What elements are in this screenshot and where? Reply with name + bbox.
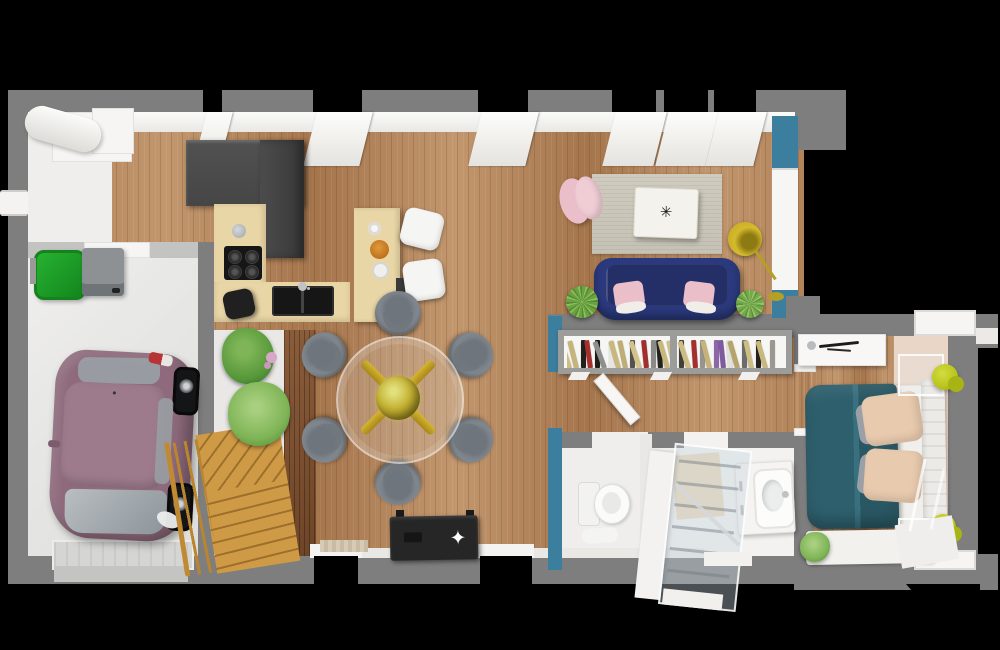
left-exterior-wall <box>8 96 28 566</box>
bay-blue-wall-top <box>772 116 798 170</box>
tv-cabinet: ✦ <box>390 515 479 561</box>
chair-seat <box>383 465 413 484</box>
table-lamp-small <box>948 376 964 392</box>
wc-top-wall <box>562 432 592 448</box>
yucca-plant <box>566 286 598 318</box>
chair-seat <box>383 312 413 331</box>
faucet <box>298 282 307 291</box>
coffee-cup <box>368 222 381 235</box>
star-ornament-icon: ✦ <box>446 525 470 549</box>
wc-mat <box>582 527 619 544</box>
coffee-table: ✳ <box>633 187 699 239</box>
recycling-bin <box>34 250 86 300</box>
bathroom-window-sill <box>704 552 752 566</box>
bed <box>805 379 950 531</box>
burner <box>228 250 242 264</box>
kettle <box>232 224 246 238</box>
top-right-corner-wall <box>793 90 846 150</box>
floor-plan-render: ✦ ✳ <box>0 0 1000 650</box>
corner-cutout <box>906 584 980 620</box>
top-wall-segment <box>222 90 313 114</box>
plate <box>372 262 389 279</box>
top-wall-segment <box>362 90 478 114</box>
bedroom-window-top <box>914 310 976 336</box>
stairs-lower-treads <box>204 480 300 574</box>
wall-sliver <box>976 328 998 344</box>
kitchen-tall-cabinet <box>260 140 304 258</box>
car-antenna <box>113 391 116 394</box>
dresser-decor <box>819 341 859 348</box>
side-plant <box>736 290 764 318</box>
glass-shower-enclosure <box>632 440 771 618</box>
doormat <box>320 540 368 552</box>
book-spine <box>691 340 698 368</box>
burner <box>245 265 259 279</box>
chandelier-globe <box>376 376 420 420</box>
dresser <box>798 334 886 366</box>
fruit-bowl <box>370 240 389 259</box>
bookshelf <box>558 330 792 374</box>
cabinet-decor <box>404 532 422 542</box>
car-windshield <box>64 489 167 535</box>
dining-chair <box>375 461 421 505</box>
car-mirror <box>48 440 60 448</box>
bath-top-wall <box>728 432 796 448</box>
sofa <box>594 258 740 320</box>
book-spine <box>651 340 656 368</box>
book-spine <box>641 340 649 368</box>
book-spine <box>718 340 726 368</box>
bottom-window-opening <box>314 556 358 586</box>
bottom-window-opening <box>480 556 532 586</box>
top-wall-segment <box>756 90 793 114</box>
kitchen-sink <box>272 286 334 316</box>
burner <box>228 265 242 279</box>
dresser-vase <box>807 341 816 350</box>
top-wall-segment <box>656 90 664 114</box>
top-wall-segment <box>528 90 612 114</box>
bay-window <box>772 168 798 292</box>
dining-chair <box>375 291 421 335</box>
top-wall-segment <box>708 90 714 114</box>
burner <box>245 250 259 264</box>
shelf-divider <box>670 334 677 370</box>
sink-divider <box>301 289 304 313</box>
garage-driveway-apron <box>54 566 188 582</box>
blue-accent-wall-wc <box>548 428 562 570</box>
dresser-decor <box>827 348 851 352</box>
cooktop <box>224 246 262 280</box>
toilet-seat <box>602 492 621 514</box>
bench-handle <box>112 288 120 293</box>
flower-accent <box>266 352 277 363</box>
wall-vent <box>0 190 28 216</box>
book-spine <box>770 340 775 368</box>
car-roof <box>60 381 169 490</box>
bin-bracket <box>30 258 36 284</box>
pillow-beige <box>860 390 924 448</box>
wood-stairs <box>166 422 304 579</box>
table-decor-icon: ✳ <box>657 203 676 222</box>
floor-lamp-base <box>768 292 784 301</box>
